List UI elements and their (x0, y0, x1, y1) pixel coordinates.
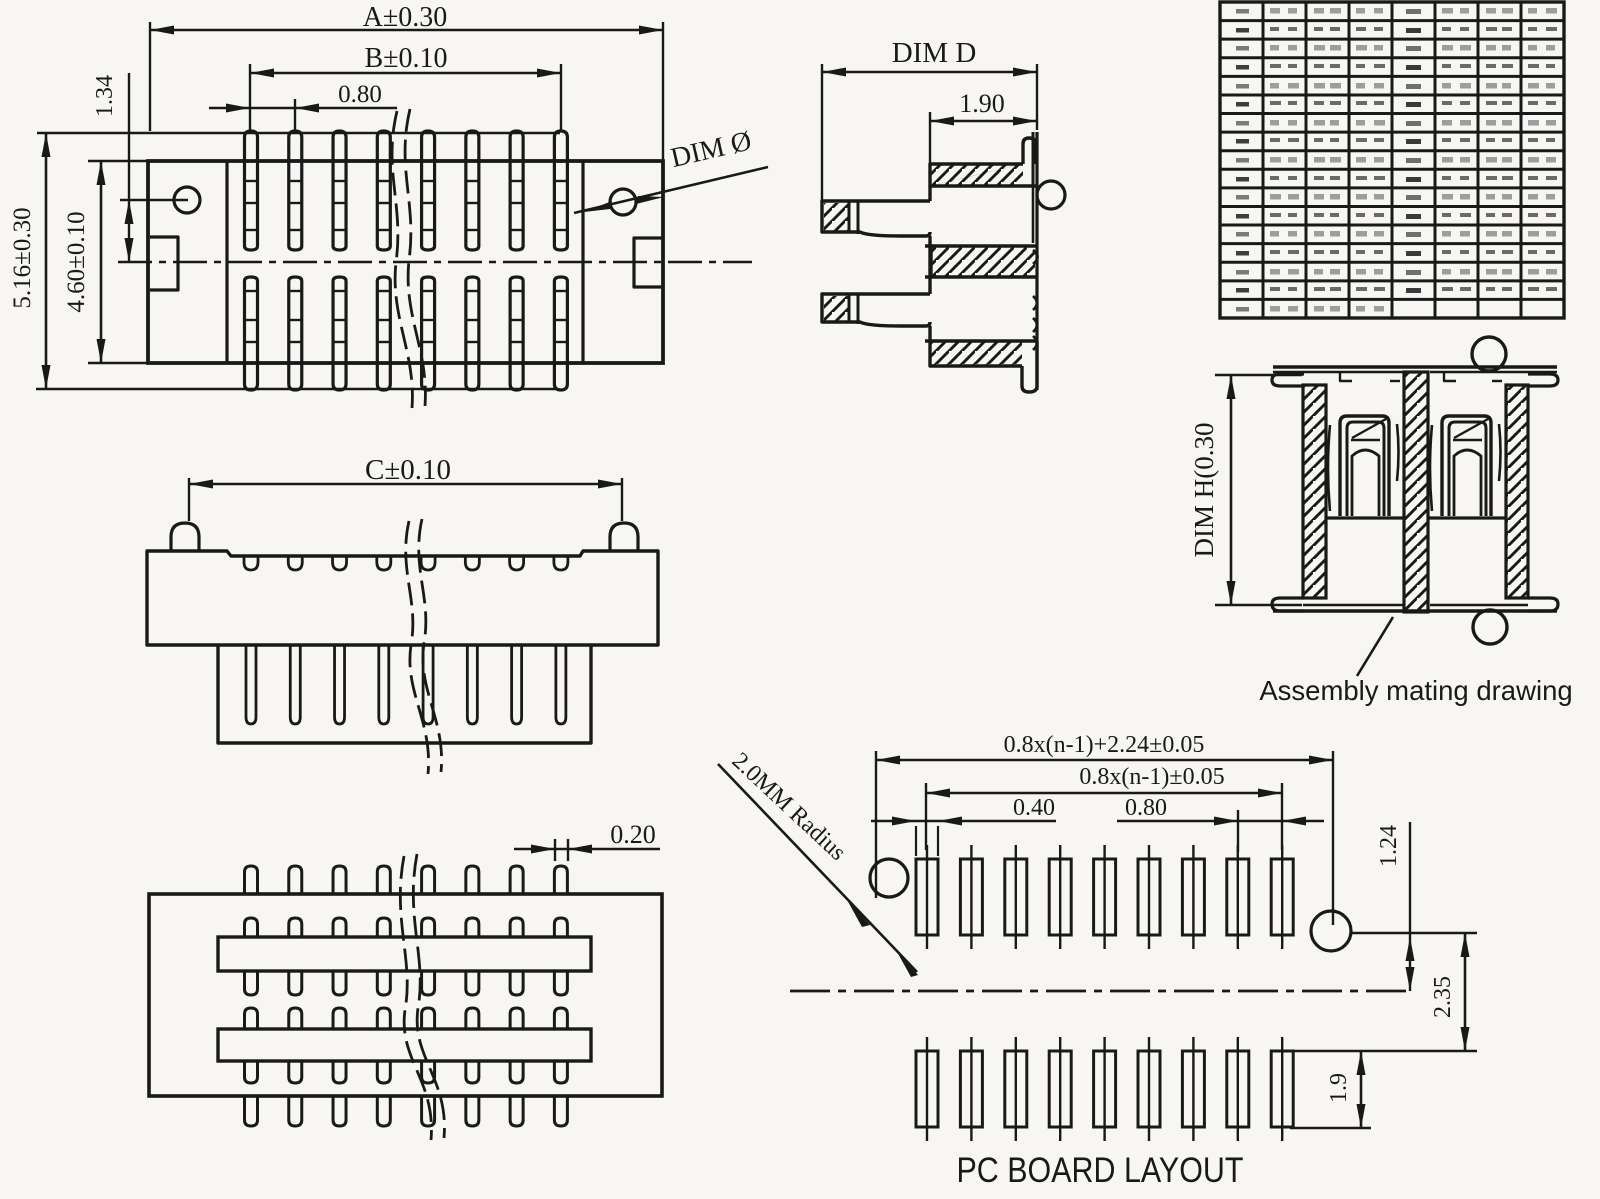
svg-text:1.9: 1.9 (1326, 1073, 1352, 1103)
svg-text:0.8x(n-1)±0.05: 0.8x(n-1)±0.05 (1079, 764, 1224, 790)
svg-text:0.40: 0.40 (1013, 795, 1055, 821)
svg-text:1.34: 1.34 (92, 75, 118, 117)
svg-text:Assembly mating drawing: Assembly mating drawing (1259, 675, 1572, 706)
svg-text:B±0.10: B±0.10 (364, 43, 447, 74)
svg-text:0.8x(n-1)+2.24±0.05: 0.8x(n-1)+2.24±0.05 (1004, 732, 1205, 758)
svg-text:C±0.10: C±0.10 (365, 454, 451, 486)
svg-text:A±0.30: A±0.30 (363, 2, 448, 33)
svg-text:PC BOARD LAYOUT: PC BOARD LAYOUT (957, 1151, 1244, 1190)
svg-text:1.24: 1.24 (1376, 825, 1402, 867)
svg-text:4.60±0.10: 4.60±0.10 (63, 211, 90, 312)
svg-text:0.80: 0.80 (1125, 795, 1167, 821)
svg-text:0.80: 0.80 (338, 81, 382, 108)
svg-text:5.16±0.30: 5.16±0.30 (9, 207, 36, 308)
svg-text:1.90: 1.90 (959, 89, 1005, 118)
svg-text:DIM D: DIM D (892, 37, 977, 69)
svg-text:0.20: 0.20 (610, 820, 656, 849)
svg-text:2.35: 2.35 (1430, 976, 1456, 1018)
svg-text:DIM H(0.30: DIM H(0.30 (1189, 423, 1219, 558)
